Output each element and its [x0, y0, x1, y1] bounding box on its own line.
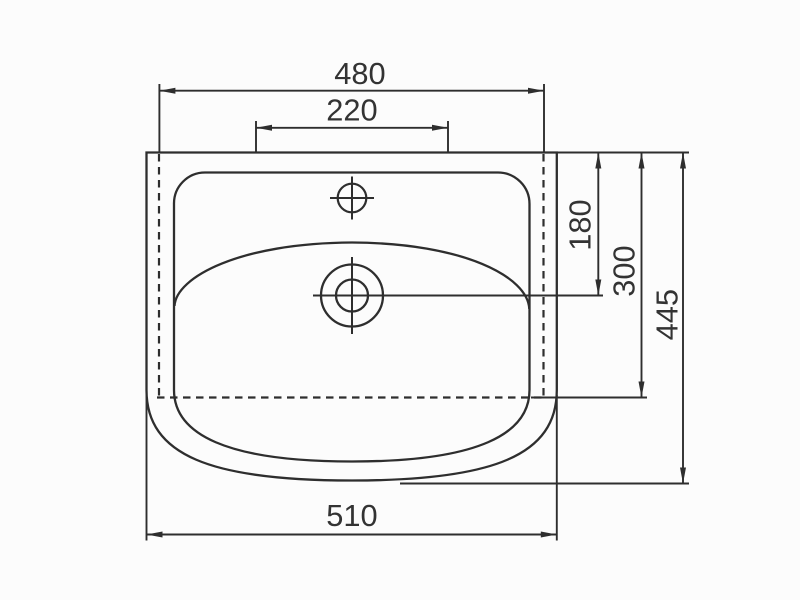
svg-text:220: 220 — [326, 93, 377, 128]
svg-text:300: 300 — [607, 245, 642, 296]
svg-text:180: 180 — [563, 199, 598, 250]
svg-text:480: 480 — [334, 56, 385, 91]
svg-text:510: 510 — [326, 498, 377, 533]
svg-text:445: 445 — [650, 289, 685, 340]
